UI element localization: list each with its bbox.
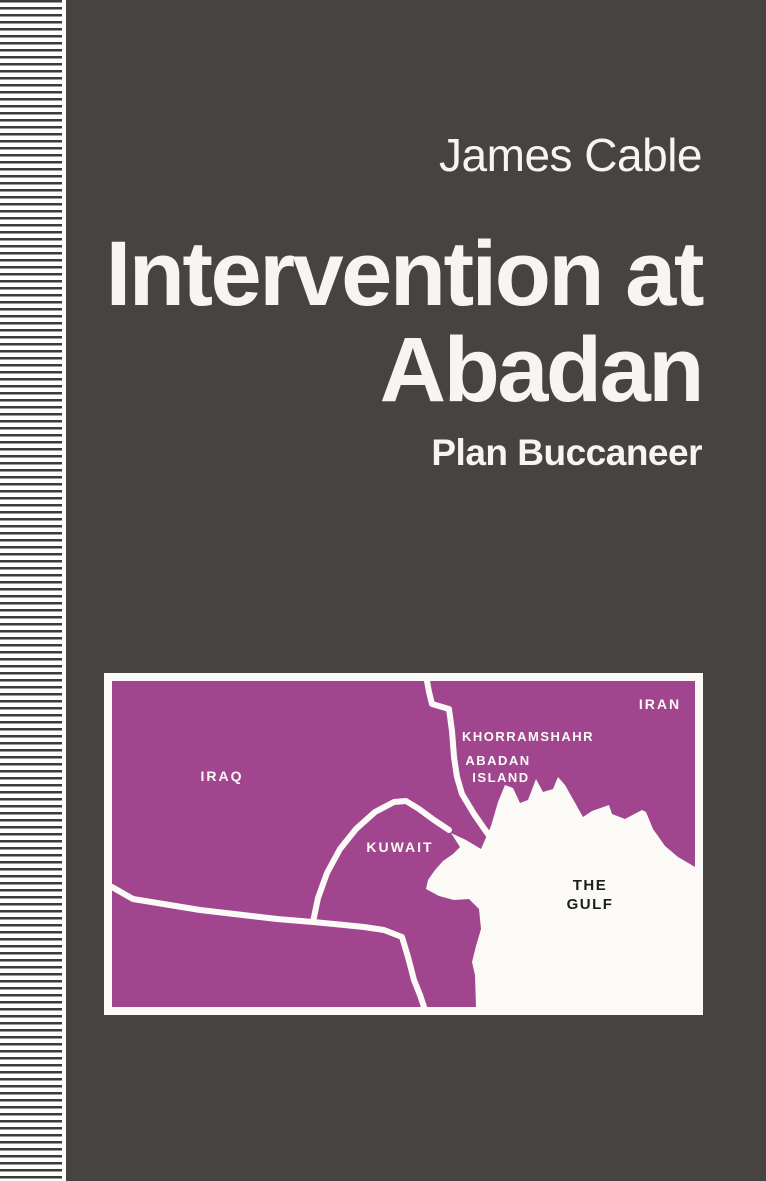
map-label-kuwait: KUWAIT <box>366 839 433 855</box>
book-cover: James Cable Intervention at Abadan Plan … <box>0 0 766 1181</box>
title-block: Intervention at Abadan Plan Buccaneer <box>106 226 702 474</box>
gulf-region-map: IRAN KHORRAMSHAHR ABADAN ISLAND IRAQ KUW… <box>112 681 695 1007</box>
map-label-iraq: IRAQ <box>201 768 244 784</box>
spine-stripes-decoration <box>0 0 66 1181</box>
map-label-iran: IRAN <box>639 696 681 712</box>
map-label-khorramshahr: KHORRAMSHAHR <box>462 729 594 744</box>
map-label-abadan-island-line2: ISLAND <box>472 770 529 785</box>
map-label-the-gulf-line2: GULF <box>567 896 614 913</box>
title-line-1: Intervention at <box>106 226 702 322</box>
map-label-the-gulf-line1: THE <box>573 877 608 894</box>
author-name: James Cable <box>439 128 702 182</box>
subtitle: Plan Buccaneer <box>106 432 702 474</box>
map-frame: IRAN KHORRAMSHAHR ABADAN ISLAND IRAQ KUW… <box>104 673 703 1015</box>
title-line-2: Abadan <box>106 322 702 418</box>
map-label-abadan-island-line1: ABADAN <box>465 753 530 768</box>
